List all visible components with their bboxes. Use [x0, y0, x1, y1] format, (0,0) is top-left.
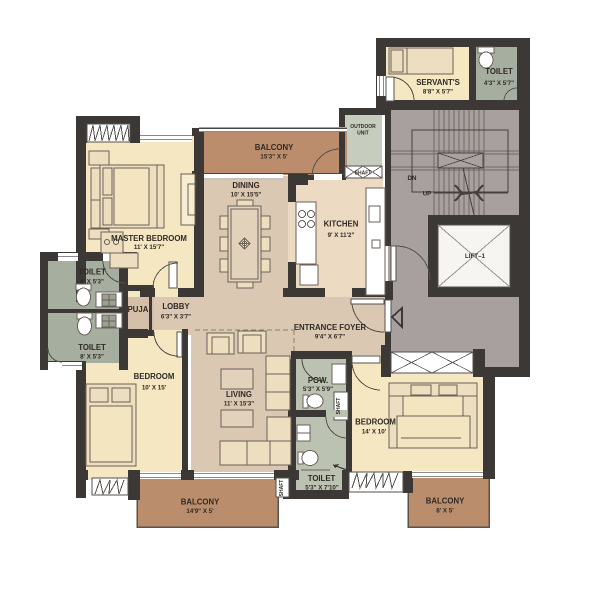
svg-text:UNIT: UNIT [357, 131, 369, 137]
svg-text:5'3" X 7'10": 5'3" X 7'10" [305, 485, 339, 492]
svg-text:LIFT–1: LIFT–1 [465, 253, 485, 260]
svg-text:BEDROOM: BEDROOM [355, 418, 396, 427]
svg-text:UP: UP [423, 191, 432, 198]
svg-text:SHAFT: SHAFT [355, 171, 372, 177]
svg-text:4'3" X 5'7": 4'3" X 5'7" [484, 80, 514, 87]
svg-text:10' X 15': 10' X 15' [142, 385, 167, 392]
svg-text:SHAFT: SHAFT [336, 398, 342, 415]
svg-text:TOILET: TOILET [485, 67, 513, 76]
svg-text:TOILET: TOILET [78, 268, 106, 277]
svg-text:DINING: DINING [232, 181, 259, 190]
svg-text:MASTER BEDROOM: MASTER BEDROOM [111, 234, 187, 243]
svg-text:BALCONY: BALCONY [181, 498, 220, 507]
svg-text:BALCONY: BALCONY [426, 497, 465, 506]
svg-text:BEDROOM: BEDROOM [134, 372, 175, 381]
svg-text:DN: DN [408, 175, 417, 182]
svg-text:8'8" X 5'7": 8'8" X 5'7" [423, 89, 453, 96]
svg-text:8' X 5'3": 8' X 5'3" [80, 279, 104, 286]
svg-text:6'3" X 3'7": 6'3" X 3'7" [161, 314, 191, 321]
svg-text:OUTDOOR: OUTDOOR [350, 124, 376, 130]
svg-text:8' X 5': 8' X 5' [436, 508, 454, 515]
svg-text:KITCHEN: KITCHEN [324, 220, 359, 229]
svg-text:9' X 11'2": 9' X 11'2" [328, 232, 355, 239]
svg-text:LIVING: LIVING [226, 390, 252, 399]
svg-text:14' X 10': 14' X 10' [362, 429, 387, 436]
svg-text:8' X 5'3": 8' X 5'3" [80, 354, 104, 361]
svg-text:15'3" X 5': 15'3" X 5' [260, 154, 288, 161]
svg-text:SHAFT: SHAFT [279, 480, 285, 497]
svg-text:5'3" X 5'9": 5'3" X 5'9" [303, 386, 333, 393]
svg-text:ENTRANCE FOYER: ENTRANCE FOYER [294, 323, 367, 332]
svg-text:BALCONY: BALCONY [255, 143, 294, 152]
svg-text:TOILET: TOILET [78, 343, 106, 352]
svg-text:14'9" X 5': 14'9" X 5' [186, 508, 214, 515]
svg-text:SERVANT'S: SERVANT'S [416, 78, 460, 87]
svg-text:LOBBY: LOBBY [162, 302, 190, 311]
svg-text:PUJA: PUJA [128, 305, 149, 314]
svg-text:TOILET: TOILET [308, 474, 336, 483]
svg-text:9'4" X 6'7": 9'4" X 6'7" [315, 334, 345, 341]
svg-text:11' X 15'7": 11' X 15'7" [134, 244, 164, 251]
svg-text:POW.: POW. [308, 376, 328, 385]
svg-text:11' X 15'3": 11' X 15'3" [224, 401, 254, 408]
svg-text:10' X 15'5": 10' X 15'5" [231, 192, 262, 199]
